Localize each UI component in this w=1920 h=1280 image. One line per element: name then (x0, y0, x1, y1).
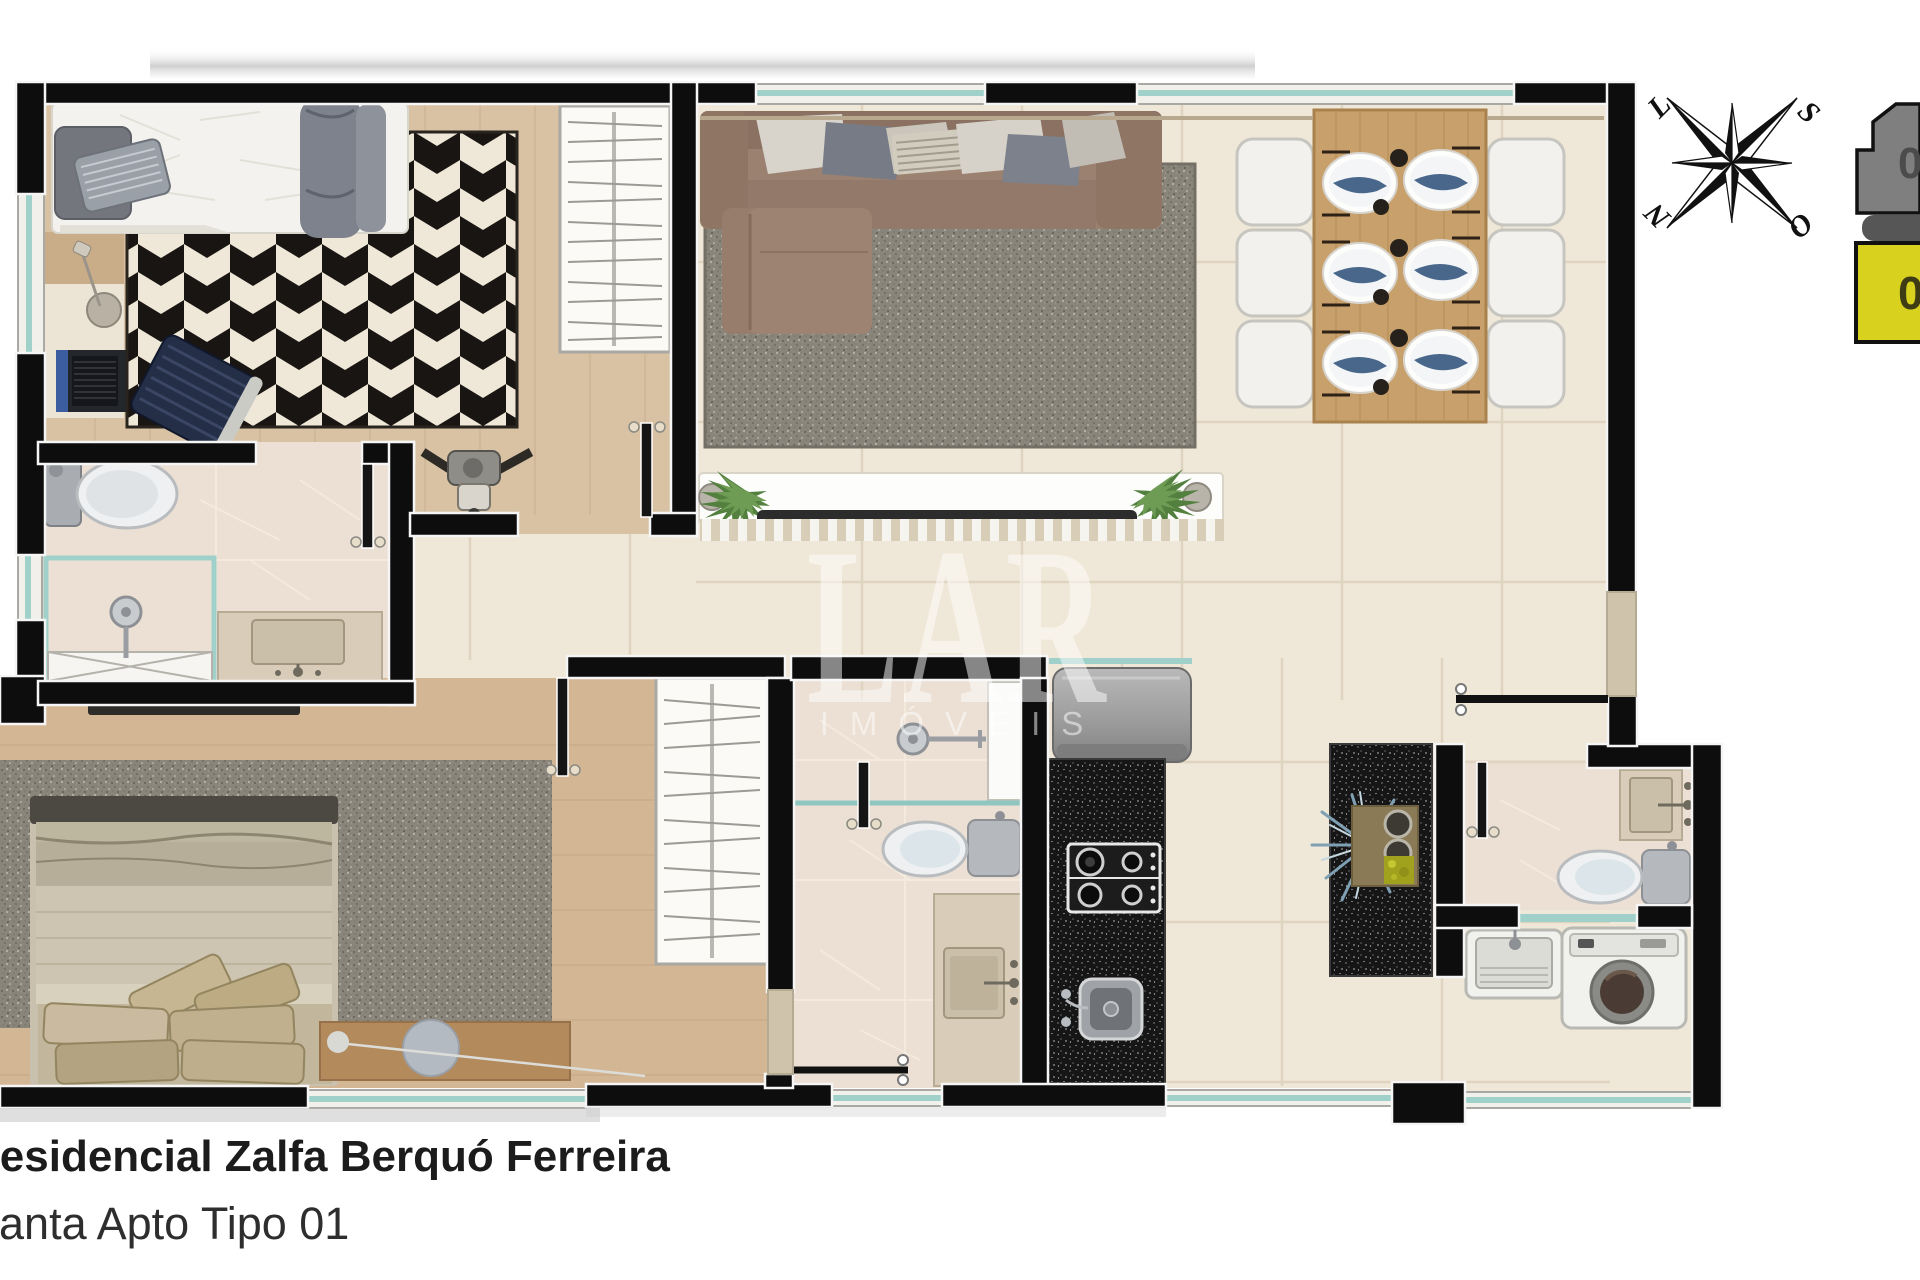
svg-text:0: 0 (1898, 139, 1920, 188)
svg-text:0: 0 (1898, 267, 1920, 319)
svg-text:IMÓVEIS: IMÓVEIS (820, 705, 1105, 742)
svg-text:Residencial Zalfa Berquó Ferre: Residencial Zalfa Berquó Ferreira (0, 1132, 670, 1181)
svg-text:Planta Apto Tipo 01: Planta Apto Tipo 01 (0, 1198, 349, 1249)
